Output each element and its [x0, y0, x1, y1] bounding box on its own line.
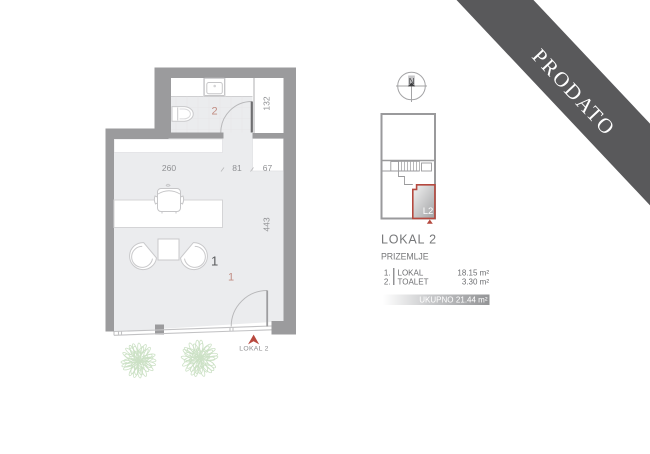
svg-text:LOKAL: LOKAL — [398, 269, 424, 278]
svg-text:67: 67 — [263, 163, 273, 173]
svg-text:L2: L2 — [423, 206, 434, 217]
svg-text:1.: 1. — [384, 269, 391, 278]
svg-text:1: 1 — [228, 272, 234, 284]
svg-text:2.: 2. — [384, 278, 391, 287]
svg-text:443: 443 — [262, 217, 272, 231]
svg-text:3.30 m²: 3.30 m² — [462, 278, 489, 287]
svg-text:18.15 m²: 18.15 m² — [457, 269, 489, 278]
svg-text:260: 260 — [162, 163, 176, 173]
svg-text:LOKAL 2: LOKAL 2 — [381, 233, 437, 247]
svg-text:81: 81 — [232, 163, 242, 173]
svg-text:132: 132 — [262, 96, 272, 110]
svg-text:21.44 m²: 21.44 m² — [456, 296, 488, 305]
svg-text:UKUPNO: UKUPNO — [419, 296, 453, 305]
svg-text:1: 1 — [211, 254, 218, 269]
svg-text:2: 2 — [212, 106, 218, 118]
svg-text:PRIZEMLJE: PRIZEMLJE — [381, 252, 429, 262]
svg-text:TOALET: TOALET — [398, 278, 429, 287]
svg-text:LOKAL 2: LOKAL 2 — [239, 345, 268, 352]
